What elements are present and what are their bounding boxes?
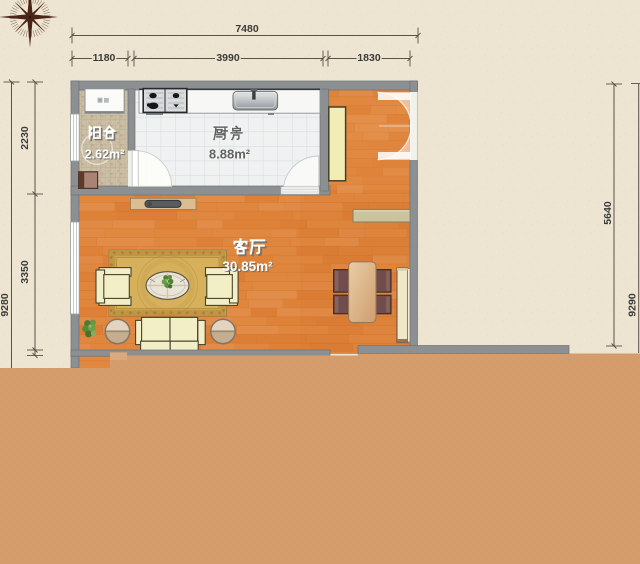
svg-text:7480: 7480 xyxy=(235,23,259,35)
svg-text:9280: 9280 xyxy=(0,293,11,317)
svg-text:8.88m²: 8.88m² xyxy=(209,147,251,162)
svg-text:3990: 3990 xyxy=(216,52,240,64)
svg-text:1180: 1180 xyxy=(93,52,116,64)
svg-text:3350: 3350 xyxy=(19,260,31,284)
svg-text:2230: 2230 xyxy=(19,126,31,150)
svg-text:5640: 5640 xyxy=(602,201,614,225)
svg-text:9290: 9290 xyxy=(627,293,639,317)
svg-text:30.85m²: 30.85m² xyxy=(222,259,273,274)
svg-text:1830: 1830 xyxy=(357,52,381,64)
svg-text:2.62m²: 2.62m² xyxy=(85,148,125,162)
